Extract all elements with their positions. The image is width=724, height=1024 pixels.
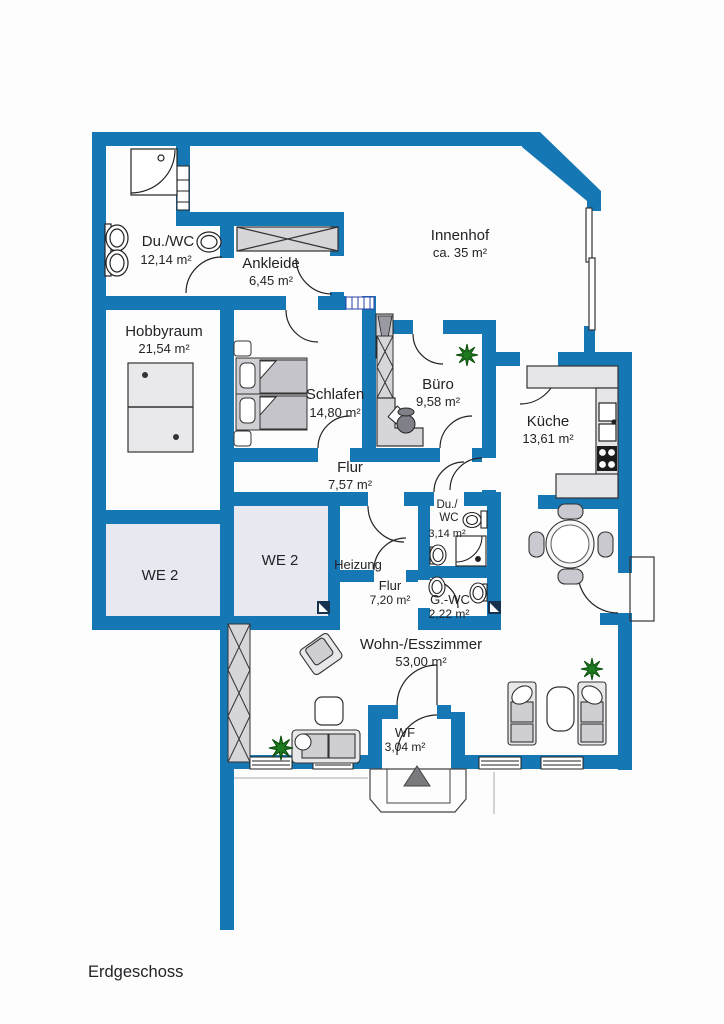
room-name-label: Büro	[422, 376, 454, 393]
room-name-label: Wohn-/Esszimmer	[360, 636, 482, 653]
plant	[581, 658, 603, 680]
room-area-label: 13,61 m²	[522, 431, 574, 446]
pillow	[240, 363, 255, 388]
dining-chair	[558, 504, 583, 519]
side-table	[547, 687, 574, 731]
table-tennis-table	[128, 363, 193, 452]
wall-segment	[368, 705, 398, 719]
wall-segment	[472, 448, 482, 462]
plant	[269, 736, 293, 760]
wall-segment	[496, 352, 520, 366]
wall-segment	[618, 613, 632, 770]
wall-segment	[406, 570, 418, 582]
shelf-cabinet	[228, 624, 250, 762]
wall-segment	[176, 212, 344, 226]
room-area-label: 7,20 m²	[370, 593, 411, 607]
room-area-label: ca. 35 m²	[433, 245, 488, 260]
sink	[430, 545, 446, 565]
floorplan-drawing: Du./WC 12,14 m² Ankleide 6,45 m² Innenho…	[0, 0, 724, 1024]
room-name-label: Ankleide	[242, 255, 300, 272]
wardrobe	[237, 227, 338, 251]
floorplan-page: Du./WC 12,14 m² Ankleide 6,45 m² Innenho…	[0, 0, 724, 1024]
room-name-label: G.-WC	[430, 592, 470, 607]
room-name-label: Flur	[379, 578, 402, 593]
room-name-label: Schlafen	[306, 386, 364, 403]
office-chair	[397, 408, 415, 433]
wall-segment	[92, 296, 286, 310]
wall-segment	[330, 292, 344, 310]
window	[541, 757, 583, 769]
room-name-label: Du./	[436, 499, 458, 511]
wall-segment	[92, 132, 524, 146]
room-area-label: 3,14 m²	[428, 528, 466, 540]
wall-segment	[220, 212, 234, 258]
room-name-label: Hobbyraum	[125, 323, 203, 340]
nightstand	[234, 431, 251, 446]
sink	[470, 583, 487, 603]
wall-segment	[362, 296, 376, 462]
wall-segment	[430, 566, 487, 578]
wall-segment	[234, 492, 368, 506]
wall-segment	[368, 712, 382, 769]
shaft-marker	[317, 601, 330, 614]
room-area-label: 6,45 m²	[249, 273, 294, 288]
toilet	[197, 232, 221, 252]
round-pillow	[295, 734, 311, 750]
recliner	[508, 682, 536, 745]
room-name-label: Küche	[527, 413, 570, 430]
room-name-label: WF	[395, 725, 415, 740]
wall-segment	[92, 132, 106, 630]
coffee-table	[315, 697, 343, 725]
sofa	[292, 730, 360, 763]
nightstand	[234, 341, 251, 356]
shaft-marker	[488, 601, 501, 614]
room-name-label: Flur	[337, 459, 363, 476]
recliner	[578, 682, 606, 745]
room-name-label: WE 2	[262, 552, 299, 569]
room-area-label: 2,22 m²	[429, 607, 470, 621]
wall-segment	[437, 705, 451, 719]
window	[346, 297, 374, 309]
toilet	[463, 511, 487, 528]
shower	[456, 536, 486, 566]
room-name-label: Heizung	[334, 557, 382, 572]
window	[479, 757, 521, 769]
office-cabinet	[377, 336, 393, 398]
dining-chair	[598, 532, 613, 557]
room-area-label: 14,80 m²	[309, 405, 361, 420]
wall-segment	[234, 448, 318, 462]
wall-segment	[376, 448, 440, 462]
room-name-label: Innenhof	[431, 227, 490, 244]
room-name-label: WC	[439, 512, 458, 524]
room-area-label: 7,57 m²	[328, 477, 373, 492]
wall-segment	[92, 510, 234, 524]
wall-segment	[92, 616, 340, 630]
shower	[131, 149, 177, 195]
wall-segment	[600, 613, 618, 625]
dining-chair	[529, 532, 544, 557]
plant	[456, 344, 478, 366]
window	[177, 166, 189, 210]
wall-segment	[451, 712, 465, 769]
wall-segment	[404, 492, 434, 506]
wall-segment	[220, 296, 234, 630]
wall-segment	[618, 352, 632, 573]
wall-segment	[482, 320, 496, 458]
wall-segment	[418, 506, 430, 580]
room-area-label: 3,04 m²	[385, 740, 426, 754]
floor-label: Erdgeschoss	[88, 963, 183, 981]
room-name-label: WE 2	[142, 567, 179, 584]
room-area-label: 53,00 m²	[395, 654, 447, 669]
room-area-label: 12,14 m²	[140, 252, 192, 267]
dining-chair	[558, 569, 583, 584]
stove	[597, 446, 617, 471]
pillow	[240, 398, 255, 423]
window	[250, 757, 292, 769]
room-area-label: 9,58 m²	[416, 394, 461, 409]
room-area-label: 21,54 m²	[138, 341, 190, 356]
room-name-label: Du./WC	[142, 233, 195, 250]
wall-segment	[451, 755, 618, 769]
